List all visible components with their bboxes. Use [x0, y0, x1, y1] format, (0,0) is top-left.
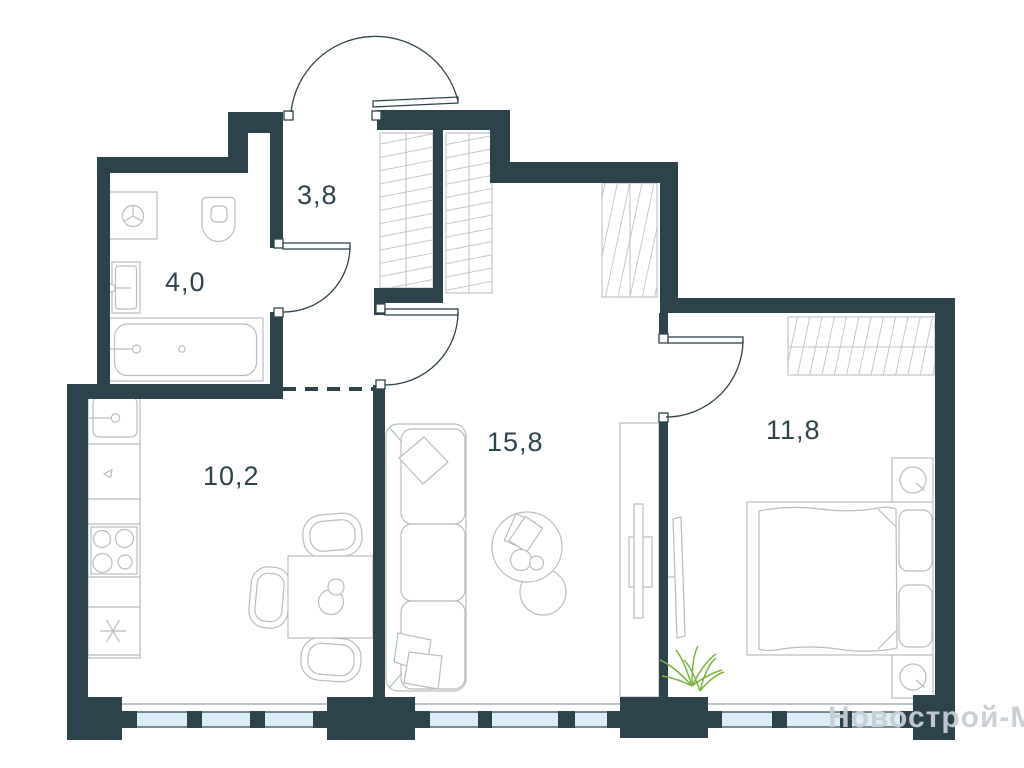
- wall-segment: [490, 162, 678, 183]
- wall-segment: [270, 133, 283, 248]
- toilet: [202, 198, 235, 242]
- nightstand-top: [892, 458, 933, 502]
- tv-console: [620, 423, 659, 697]
- closet-corridor: [602, 183, 657, 297]
- room-area-label-kitchen: 10,2: [203, 463, 260, 490]
- washing-machine: [109, 192, 157, 239]
- dining-chair-left: [247, 565, 291, 629]
- kitchen-counter: [88, 392, 140, 658]
- wall-segment: [97, 157, 110, 384]
- door-leaf: [283, 243, 350, 249]
- wall-segment: [935, 313, 955, 698]
- room-area-label-bathroom: 4,0: [165, 269, 206, 296]
- bathroom-sink: [107, 262, 140, 313]
- floor-plan-svg: [0, 0, 1024, 768]
- bed: [747, 502, 933, 655]
- nightstand-bottom: [892, 655, 933, 698]
- closet-hall-left: [380, 133, 433, 288]
- wall-segment: [228, 112, 283, 133]
- window-glass: [122, 712, 913, 727]
- door-leaf: [668, 337, 743, 343]
- room-area-label-hallway: 3,8: [297, 182, 338, 209]
- room-area-label-bedroom: 11,8: [766, 417, 821, 444]
- cup: [511, 550, 532, 571]
- dining-chair-bottom: [300, 636, 363, 683]
- dining-table: [288, 556, 373, 638]
- wall-segment: [620, 697, 708, 738]
- wall-segment: [373, 385, 385, 697]
- wall-segment: [67, 697, 122, 740]
- floor-plan: 3,8 4,0 10,2 15,8 11,8 Новострой-М: [0, 0, 1024, 768]
- closet-bedroom: [788, 317, 935, 375]
- tv-living: [634, 504, 643, 618]
- wall-segment: [97, 157, 248, 173]
- bed-pillow: [899, 585, 932, 647]
- closet-hall-right: [446, 133, 492, 293]
- door-leaf: [385, 309, 458, 315]
- mattress: [759, 507, 897, 651]
- room-area-label-living-room: 15,8: [487, 429, 544, 456]
- sofa-pillow: [404, 652, 442, 689]
- wall-segment: [433, 130, 443, 303]
- bed-pillow: [899, 510, 932, 571]
- wall-segment: [660, 298, 955, 313]
- wall-segment: [660, 163, 678, 313]
- wall-segment: [490, 110, 510, 163]
- dining-chair-top: [301, 512, 364, 560]
- wall-segment: [327, 697, 415, 740]
- bathtub: [108, 318, 263, 381]
- watermark: Новострой-М: [828, 703, 1024, 733]
- wall-segment: [659, 418, 668, 697]
- cup: [530, 556, 544, 570]
- wall-segment: [67, 384, 88, 697]
- wall-segment: [67, 384, 283, 399]
- sofa: [386, 424, 466, 691]
